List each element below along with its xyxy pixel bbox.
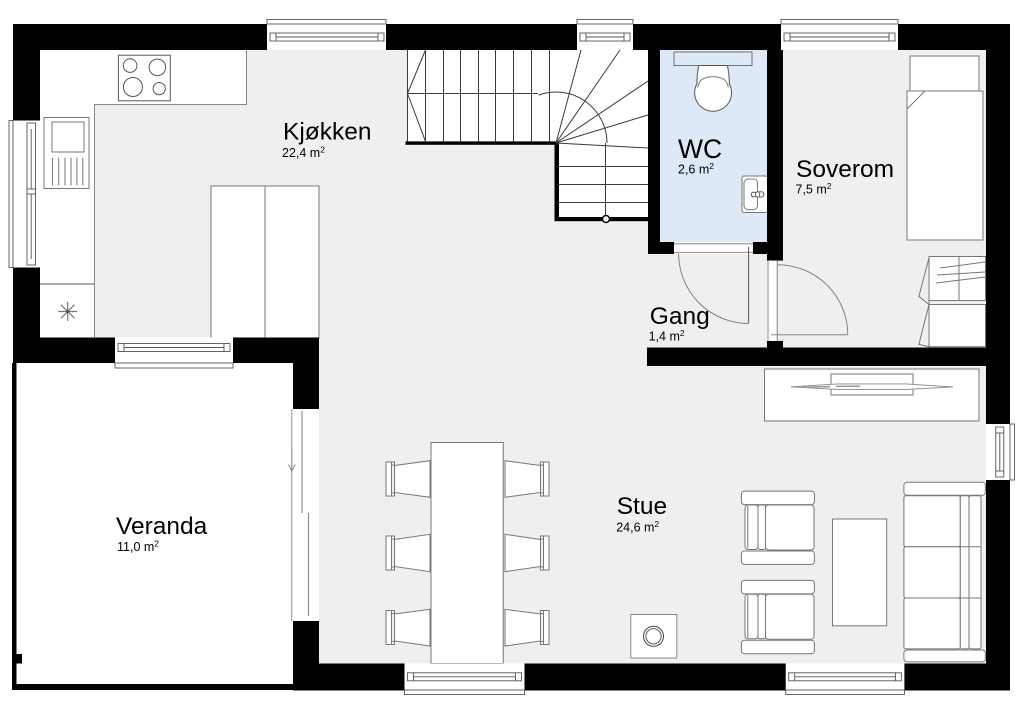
svg-text:7,5 m2: 7,5 m2 [796,181,832,197]
svg-text:Veranda: Veranda [116,513,208,540]
svg-text:WC: WC [678,134,722,164]
svg-text:24,6 m2: 24,6 m2 [616,519,659,535]
svg-text:Kjøkken: Kjøkken [283,118,372,145]
svg-text:Stue: Stue [617,493,667,520]
svg-text:11,0 m2: 11,0 m2 [117,539,159,555]
svg-text:22,4 m2: 22,4 m2 [282,145,325,161]
svg-text:1,4 m2: 1,4 m2 [649,328,685,344]
svg-text:2,6 m2: 2,6 m2 [678,161,714,177]
svg-text:Soverom: Soverom [796,156,894,183]
svg-text:Gang: Gang [650,303,710,330]
